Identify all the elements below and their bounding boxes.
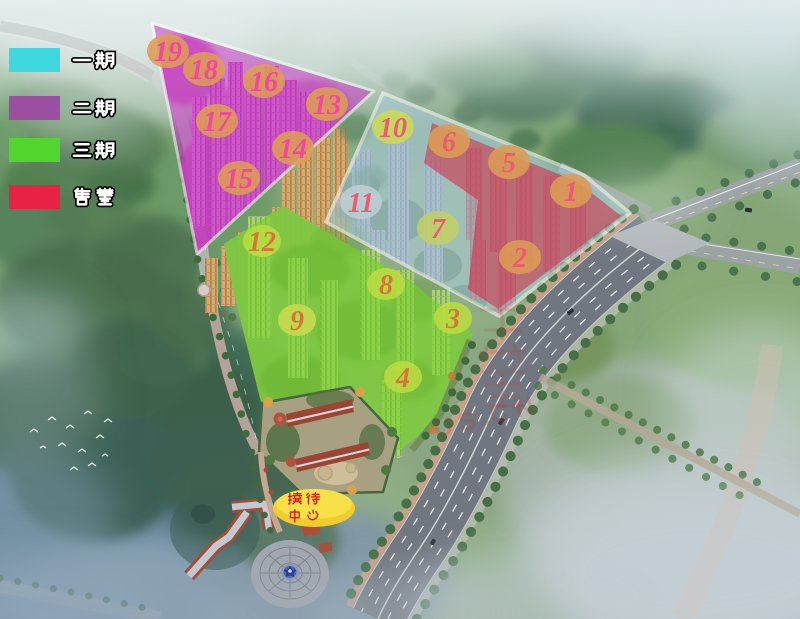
- svg-text:4: 4: [395, 363, 410, 394]
- svg-text:14: 14: [279, 134, 307, 165]
- svg-text:9: 9: [290, 306, 304, 337]
- svg-text:5: 5: [502, 148, 516, 179]
- svg-text:12: 12: [248, 227, 276, 258]
- svg-text:1: 1: [564, 177, 578, 208]
- svg-text:15: 15: [225, 164, 253, 195]
- svg-text:16: 16: [250, 67, 278, 98]
- svg-text:7: 7: [431, 214, 446, 245]
- svg-text:6: 6: [442, 127, 456, 158]
- svg-text:11: 11: [348, 188, 374, 219]
- svg-text:13: 13: [313, 90, 341, 121]
- svg-text:19: 19: [154, 37, 182, 68]
- svg-text:10: 10: [379, 113, 407, 144]
- svg-text:17: 17: [203, 107, 232, 138]
- svg-text:3: 3: [445, 304, 460, 335]
- svg-text:8: 8: [379, 270, 393, 301]
- svg-text:2: 2: [512, 243, 527, 274]
- svg-text:18: 18: [190, 55, 218, 86]
